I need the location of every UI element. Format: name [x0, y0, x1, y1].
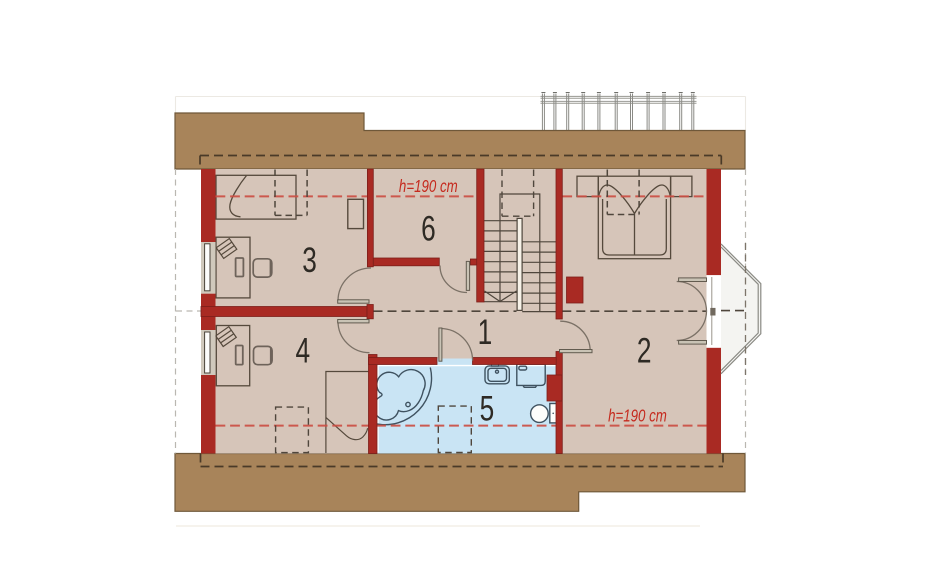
svg-text:6: 6	[421, 209, 436, 249]
svg-text:5: 5	[480, 389, 495, 429]
svg-text:3: 3	[302, 240, 317, 280]
svg-text:h=190 cm: h=190 cm	[399, 177, 458, 196]
svg-text:4: 4	[295, 331, 310, 371]
svg-text:2: 2	[637, 331, 652, 371]
svg-text:h=190 cm: h=190 cm	[608, 407, 667, 426]
svg-text:1: 1	[478, 312, 493, 352]
